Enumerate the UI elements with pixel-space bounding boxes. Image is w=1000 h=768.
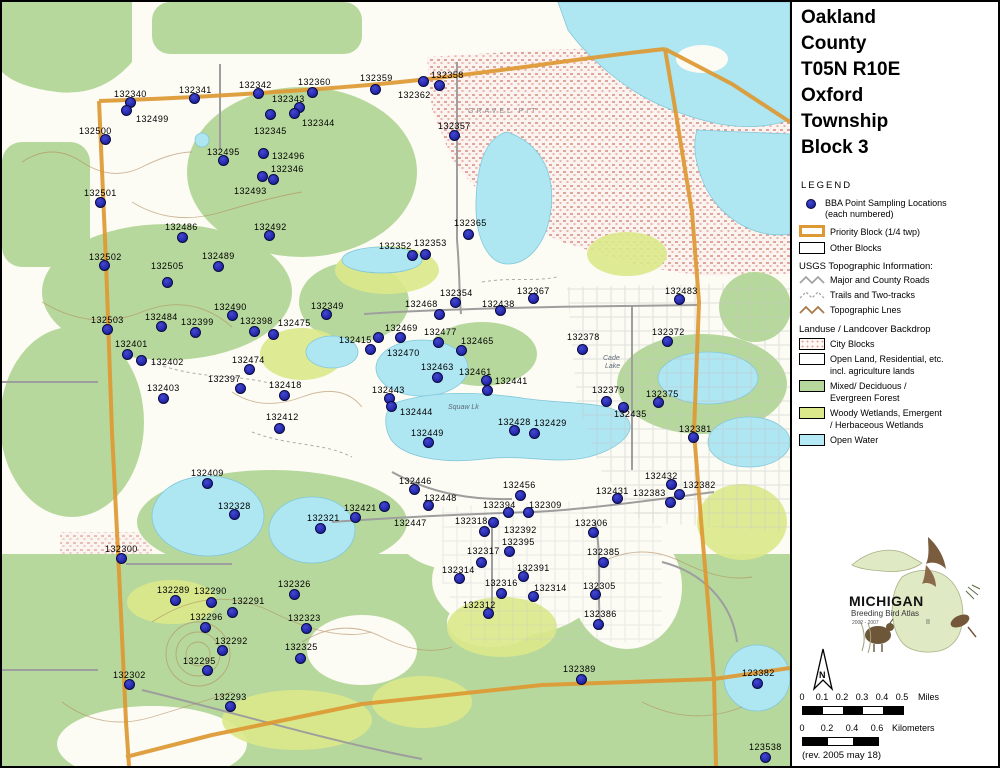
landuse-forest-label2: Evergreen Forest <box>830 393 900 404</box>
bba-point-dot-132300 <box>116 553 127 564</box>
bba-point-dot-132386 <box>593 619 604 630</box>
bba-point-dot-132399 <box>190 327 201 338</box>
bba-point-label-132314: 132314 <box>534 584 567 593</box>
bba-point-label-132352: 132352 <box>379 242 412 251</box>
bba-point-dot-132474 <box>244 364 255 375</box>
bba-point-dot-132321 <box>315 523 326 534</box>
landuse-heading: Landuse / Landcover Backdrop <box>799 324 931 335</box>
bba-point-label-132312: 132312 <box>463 601 496 610</box>
bba-point-dot-132463 <box>432 372 443 383</box>
bba-point-label-132325: 132325 <box>285 643 318 652</box>
bba-point-dot-132505 <box>162 277 173 288</box>
water-swatch <box>799 434 825 446</box>
miles-tick: 0 <box>799 692 804 702</box>
bba-point-label-132389: 132389 <box>563 665 596 674</box>
bba-point-dot-132418 <box>279 390 290 401</box>
title-line: Block 3 <box>792 135 900 161</box>
bba-point-dot-132292 <box>217 645 228 656</box>
bba-point-label-132359: 132359 <box>360 74 393 83</box>
bba-point-label-132293: 132293 <box>214 693 247 702</box>
bba-point-label-132493: 132493 <box>234 187 267 196</box>
logo-years: 2002 - 2007 <box>852 620 879 626</box>
bba-point-dot-132402 <box>136 355 147 366</box>
bba-point-dot-132397 <box>235 383 246 394</box>
priority-block-swatch <box>799 225 825 237</box>
usgs-item-topo: Topographic Lnes <box>830 305 901 316</box>
bba-point-dot-132503 <box>102 324 113 335</box>
bba-point-dot-132302 <box>124 679 135 690</box>
map-place-text: Squaw Lk <box>448 404 479 411</box>
bba-point-label-132321: 132321 <box>307 514 340 523</box>
bba-point-dot-132475 <box>268 329 279 340</box>
bba-point-legend-icon <box>806 199 816 209</box>
bba-point-dot-132289 <box>170 595 181 606</box>
bba-point-label-132402: 132402 <box>151 358 184 367</box>
bba-point-label-132383: 132383 <box>633 489 666 498</box>
bba-point-dot-132317 <box>476 557 487 568</box>
usgs-item-trails: Trails and Two-tracks <box>830 290 915 301</box>
bba-point-label-132418: 132418 <box>269 381 302 390</box>
bba-point-label-132403: 132403 <box>147 384 180 393</box>
bba-point-label-132379: 132379 <box>592 386 625 395</box>
bba-point-dot-132379 <box>601 396 612 407</box>
bba-point-label-132489: 132489 <box>202 252 235 261</box>
bba-point-label-132358: 132358 <box>431 71 464 80</box>
bba-point-dot-132362 <box>418 76 429 87</box>
wetland-swatch <box>799 407 825 419</box>
bba-point-label-132495: 132495 <box>207 148 240 157</box>
bba-point-label-132302: 132302 <box>113 671 146 680</box>
legend-other-label: Other Blocks <box>830 243 882 254</box>
bba-point-dot-132415 <box>373 332 384 343</box>
topographic-lines-icon <box>799 304 825 316</box>
bba-point-label-132354: 132354 <box>440 289 473 298</box>
bba-point-dot-132389 <box>576 674 587 685</box>
bba-point-label-132449: 132449 <box>411 429 444 438</box>
landuse-city-label: City Blocks <box>830 339 875 350</box>
bba-point-dot-123382 <box>752 678 763 689</box>
bba-point-dot-132359 <box>370 84 381 95</box>
bba-point-dot-132477 <box>433 337 444 348</box>
bba-point-label-132412: 132412 <box>266 413 299 422</box>
bba-point-label-132391: 132391 <box>517 564 550 573</box>
landuse-open-label2: incl. agriculture lands <box>830 366 915 377</box>
bba-point-dot-132456 <box>515 490 526 501</box>
bba-point-dot-132429 <box>529 428 540 439</box>
bba-point-label-132398: 132398 <box>240 317 273 326</box>
bba-point-dot-132468 <box>434 309 445 320</box>
bba-point-label-132317: 132317 <box>467 547 500 556</box>
bba-point-dot-132447 <box>379 501 390 512</box>
bba-point-label-132500: 132500 <box>79 127 112 136</box>
bba-point-label-132448: 132448 <box>424 494 457 503</box>
bba-point-label-132468: 132468 <box>405 300 438 309</box>
bba-point-dot-132306 <box>588 527 599 538</box>
bba-point-label-132394: 132394 <box>483 501 516 510</box>
bba-point-label-132486: 132486 <box>165 223 198 232</box>
bba-point-label-132289: 132289 <box>157 586 190 595</box>
bba-point-label-132353: 132353 <box>414 239 447 248</box>
bba-point-label-132496: 132496 <box>272 152 305 161</box>
bba-point-label-132344: 132344 <box>302 119 335 128</box>
landuse-water-label: Open Water <box>830 435 878 446</box>
bba-point-label-132502: 132502 <box>89 253 122 262</box>
landuse-open-label: Open Land, Residential, etc. <box>830 354 944 365</box>
landuse-forest-label: Mixed/ Deciduous / <box>830 381 907 392</box>
bba-point-label-132438: 132438 <box>482 300 515 309</box>
logo-subtitle: Breeding Bird Atlas <box>851 609 919 618</box>
bba-point-dot-132346 <box>257 171 268 182</box>
bba-point-dot-132465 <box>456 345 467 356</box>
logo-title: MICHIGAN <box>849 593 924 609</box>
bba-point-label-132345: 132345 <box>254 127 287 136</box>
bba-point-dot-132444 <box>386 401 397 412</box>
bba-point-dot-132372 <box>662 336 673 347</box>
usgs-item-roads: Major and County Roads <box>830 275 930 286</box>
bba-point-label-132340: 132340 <box>114 90 147 99</box>
bba-point-label-132378: 132378 <box>567 333 600 342</box>
bba-point-label-132397: 132397 <box>208 375 241 384</box>
bba-point-label-132503: 132503 <box>91 316 124 325</box>
bba-point-label-132362: 132362 <box>398 91 431 100</box>
bba-point-dot-132403 <box>158 393 169 404</box>
bba-point-dot-132401 <box>122 349 133 360</box>
landuse-wetland-label2: / Herbaceous Wetlands <box>830 420 923 431</box>
bba-point-label-132456: 132456 <box>503 481 536 490</box>
bba-point-label-132469: 132469 <box>385 324 418 333</box>
bba-point-label-132296: 132296 <box>190 613 223 622</box>
bba-point-label-132318: 132318 <box>455 517 488 526</box>
bba-points-layer: 1323401324991323411323421323601323591323… <box>2 2 790 766</box>
bba-point-label-132291: 132291 <box>232 597 265 606</box>
bba-point-dot-132365 <box>463 229 474 240</box>
bba-point-label-132305: 132305 <box>583 582 616 591</box>
bba-point-dot-132412 <box>274 423 285 434</box>
km-tick: 0 <box>799 723 804 733</box>
bba-point-dot-132486 <box>177 232 188 243</box>
bba-point-label-132306: 132306 <box>575 519 608 528</box>
bba-point-label-132465: 132465 <box>461 337 494 346</box>
miles-tick: 0.4 <box>876 692 889 702</box>
bba-point-label-132401: 132401 <box>115 340 148 349</box>
km-scalebar <box>802 737 879 746</box>
bba-point-label-132300: 132300 <box>105 545 138 554</box>
landuse-wetland-label: Woody Wetlands, Emergent <box>830 408 942 419</box>
bba-point-label-132470: 132470 <box>387 349 420 358</box>
miles-tick: 0.5 <box>896 692 909 702</box>
miles-tick: 0.1 <box>816 692 829 702</box>
bba-point-dot-132323 <box>301 623 312 634</box>
legend-heading: LEGEND <box>801 180 852 191</box>
bba-point-dot-132489 <box>213 261 224 272</box>
bba-point-dot-132395 <box>504 546 515 557</box>
bba-point-dot-132398 <box>249 326 260 337</box>
km-tick: 0.6 <box>871 723 884 733</box>
bba-point-label-132428: 132428 <box>498 418 531 427</box>
bba-point-label-132474: 132474 <box>232 356 265 365</box>
bba-point-label-132381: 132381 <box>679 425 712 434</box>
bba-point-dot-132318 <box>488 517 499 528</box>
km-tick: 0.4 <box>846 723 859 733</box>
bba-point-label-132421: 132421 <box>344 504 377 513</box>
bba-point-dot-132326 <box>289 589 300 600</box>
title-line: Oakland <box>792 5 900 31</box>
bba-point-label-132484: 132484 <box>145 313 178 322</box>
bba-point-label-132501: 132501 <box>84 189 117 198</box>
km-tick: 0.2 <box>821 723 834 733</box>
bba-point-dot-132352 <box>407 250 418 261</box>
bba-point-label-132349: 132349 <box>311 302 344 311</box>
bba-point-dot-132392 <box>479 526 490 537</box>
bba-point-label-132492: 132492 <box>254 223 287 232</box>
bba-point-dot-132469 <box>395 332 406 343</box>
bba-point-label-132461: 132461 <box>459 368 492 377</box>
bba-point-label-132432: 132432 <box>645 472 678 481</box>
bba-point-label-132326: 132326 <box>278 580 311 589</box>
bba-point-dot-132293 <box>225 701 236 712</box>
bba-point-dot-132296 <box>200 622 211 633</box>
north-label: N <box>819 670 826 680</box>
trails-icon <box>799 289 825 301</box>
bba-point-label-132328: 132328 <box>218 502 251 511</box>
bba-point-dot-132499 <box>121 105 132 116</box>
bba-point-label-132505: 132505 <box>151 262 184 271</box>
bba-point-label-132409: 132409 <box>191 469 224 478</box>
bba-point-dot-132360 <box>307 87 318 98</box>
bba-point-label-132346: 132346 <box>271 165 304 174</box>
bba-point-label-132367: 132367 <box>517 287 550 296</box>
open-land-swatch <box>799 353 825 365</box>
bba-point-label-132360: 132360 <box>298 78 331 87</box>
miles-scalebar <box>802 706 904 715</box>
bba-point-dot-132358 <box>434 80 445 91</box>
revision-note: (rev. 2005 may 18) <box>802 750 881 761</box>
bba-point-dot-132291 <box>227 607 238 618</box>
bba-point-dot-132378 <box>577 344 588 355</box>
bba-point-label-132375: 132375 <box>646 390 679 399</box>
bba-point-dot-132484 <box>156 321 167 332</box>
bba-point-label-132323: 132323 <box>288 614 321 623</box>
bba-point-dot-132385 <box>598 557 609 568</box>
bba-point-dot-132470 <box>365 344 376 355</box>
bba-point-label-132357: 132357 <box>438 122 471 131</box>
bba-point-label-132316: 132316 <box>485 579 518 588</box>
bba-point-label-132463: 132463 <box>421 363 454 372</box>
map-place-text: Lake <box>605 363 620 370</box>
bba-point-label-132292: 132292 <box>215 637 248 646</box>
legend-priority-label: Priority Block (1/4 twp) <box>830 227 920 238</box>
bba-point-label-132443: 132443 <box>372 386 405 395</box>
bba-point-label-132342: 132342 <box>239 81 272 90</box>
bba-point-label-132314: 132314 <box>442 566 475 575</box>
bba-point-label-132475: 132475 <box>278 319 311 328</box>
bba-point-dot-132421 <box>350 512 361 523</box>
bba-point-label-132385: 132385 <box>587 548 620 557</box>
major-roads-icon <box>799 274 825 286</box>
bba-point-dot-132295 <box>202 665 213 676</box>
topographic-map: 1323401324991323411323421323601323591323… <box>2 2 792 766</box>
legend-bba-sublabel: (each numbered) <box>825 209 894 220</box>
bba-point-label-132446: 132446 <box>399 477 432 486</box>
bba-point-dot-132441 <box>482 385 493 396</box>
bba-point-label-132309: 132309 <box>529 501 562 510</box>
map-sheet: 1323401324991323411323421323601323591323… <box>0 0 1000 768</box>
bba-point-label-132386: 132386 <box>584 610 617 619</box>
other-blocks-swatch <box>799 242 825 254</box>
bba-point-label-132431: 132431 <box>596 487 629 496</box>
title-line: County <box>792 31 900 57</box>
bba-point-label-132429: 132429 <box>534 419 567 428</box>
bba-point-label-132447: 132447 <box>394 519 427 528</box>
bba-point-label-132392: 132392 <box>504 526 537 535</box>
bba-point-dot-132353 <box>420 249 431 260</box>
title-line: Township <box>792 109 900 135</box>
map-place-text: Cade <box>603 355 620 362</box>
title-line: Oxford <box>792 83 900 109</box>
bba-point-label-132483: 132483 <box>665 287 698 296</box>
bba-point-label-132499: 132499 <box>136 115 169 124</box>
usgs-heading: USGS Topographic Information: <box>799 261 933 272</box>
bba-point-label-132435: 132435 <box>614 410 647 419</box>
bba-point-label-132341: 132341 <box>179 86 212 95</box>
forest-swatch <box>799 380 825 392</box>
logo-numeral: II <box>926 619 930 626</box>
bba-point-label-123382: 123382 <box>742 669 775 678</box>
map-place-text: GRAVEL PIT <box>468 108 538 115</box>
bba-point-label-132290: 132290 <box>194 587 227 596</box>
sidebar: Oakland County T05N R10E Oxford Township… <box>792 2 998 766</box>
bba-point-label-132365: 132365 <box>454 219 487 228</box>
bba-point-label-132441: 132441 <box>495 377 528 386</box>
bba-point-dot-132325 <box>295 653 306 664</box>
bba-point-label-132444: 132444 <box>400 408 433 417</box>
bba-point-dot-132354 <box>450 297 461 308</box>
bba-point-dot-132344 <box>289 108 300 119</box>
bba-point-dot-132496 <box>258 148 269 159</box>
bba-point-label-132415: 132415 <box>339 336 372 345</box>
bba-point-dot-132290 <box>206 597 217 608</box>
miles-tick: 0.2 <box>836 692 849 702</box>
bba-point-label-132343: 132343 <box>272 95 305 104</box>
title-line: T05N R10E <box>792 57 900 83</box>
miles-unit: Miles <box>918 692 939 702</box>
city-blocks-swatch <box>799 338 825 350</box>
bba-point-label-123538: 123538 <box>749 743 782 752</box>
bba-point-label-132382: 132382 <box>683 481 716 490</box>
bba-point-dot-132493 <box>268 174 279 185</box>
bba-point-dot-132449 <box>423 437 434 448</box>
bba-point-dot-132357 <box>449 130 460 141</box>
bba-point-label-132399: 132399 <box>181 318 214 327</box>
km-unit: Kilometers <box>892 723 935 733</box>
bba-point-label-132490: 132490 <box>214 303 247 312</box>
bba-point-dot-132383 <box>665 497 676 508</box>
bba-point-dot-132409 <box>202 478 213 489</box>
legend-bba-label: BBA Point Sampling Locations <box>825 198 947 209</box>
bba-point-dot-123538 <box>760 752 771 763</box>
bba-point-dot-132501 <box>95 197 106 208</box>
map-title: Oakland County T05N R10E Oxford Township… <box>792 5 900 161</box>
bba-point-dot-132345 <box>265 109 276 120</box>
bba-point-label-132372: 132372 <box>652 328 685 337</box>
bba-point-label-132395: 132395 <box>502 538 535 547</box>
bba-point-label-132295: 132295 <box>183 657 216 666</box>
bba-point-label-132477: 132477 <box>424 328 457 337</box>
bba-point-dot-132382 <box>674 489 685 500</box>
bba-point-dot-132316 <box>496 588 507 599</box>
miles-tick: 0.3 <box>856 692 869 702</box>
